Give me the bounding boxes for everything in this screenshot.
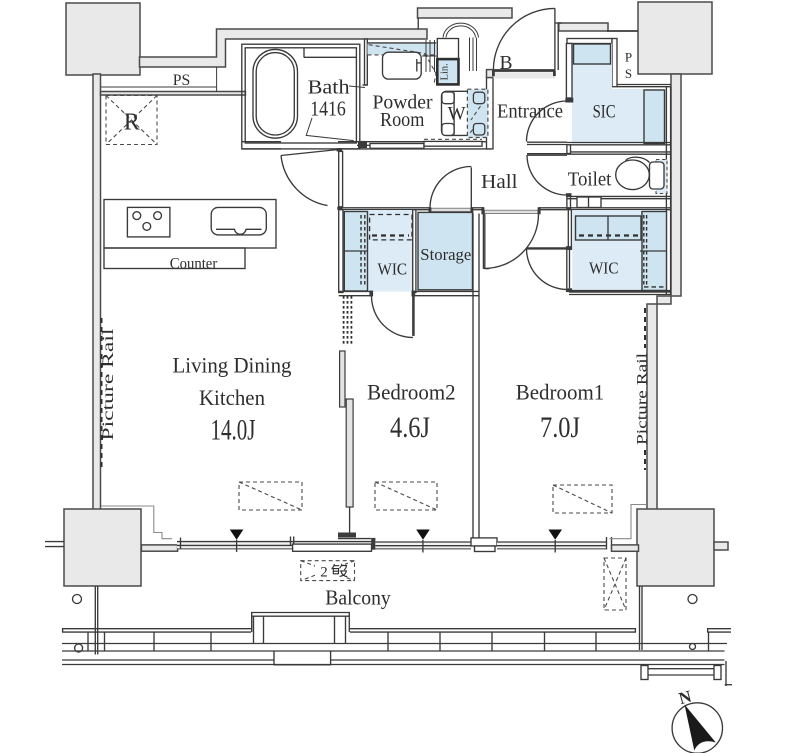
svg-text:Living Dining: Living Dining: [173, 352, 292, 377]
svg-text:Entrance: Entrance: [497, 101, 563, 122]
svg-text:Hall: Hall: [481, 171, 518, 193]
svg-text:SIC: SIC: [593, 101, 616, 122]
svg-text:P: P: [625, 50, 632, 65]
svg-text:4.6J: 4.6J: [390, 411, 430, 444]
svg-text:Kitchen: Kitchen: [199, 385, 265, 410]
svg-text:14.0J: 14.0J: [211, 414, 256, 447]
svg-text:7.0J: 7.0J: [540, 411, 580, 444]
svg-text:PS: PS: [173, 72, 191, 89]
svg-text:Counter: Counter: [170, 255, 218, 272]
svg-text:Balcony: Balcony: [325, 586, 391, 610]
svg-text:S: S: [625, 66, 632, 81]
svg-text:Lin.: Lin.: [440, 63, 451, 80]
svg-text:Picture Rail: Picture Rail: [635, 353, 651, 445]
svg-text:WIC: WIC: [589, 259, 619, 278]
svg-text:Picture Rail: Picture Rail: [100, 329, 117, 441]
svg-text:Bedroom1: Bedroom1: [516, 380, 605, 405]
svg-text:Storage: Storage: [420, 245, 471, 264]
svg-text:1416: 1416: [310, 96, 346, 120]
svg-text:Toilet: Toilet: [568, 169, 612, 191]
svg-text:Bedroom2: Bedroom2: [367, 380, 456, 405]
svg-text:2: 2: [320, 565, 328, 581]
svg-text:Room: Room: [380, 109, 425, 131]
svg-text:WIC: WIC: [378, 260, 408, 279]
svg-text:W: W: [448, 104, 466, 125]
svg-text:R: R: [124, 110, 140, 136]
